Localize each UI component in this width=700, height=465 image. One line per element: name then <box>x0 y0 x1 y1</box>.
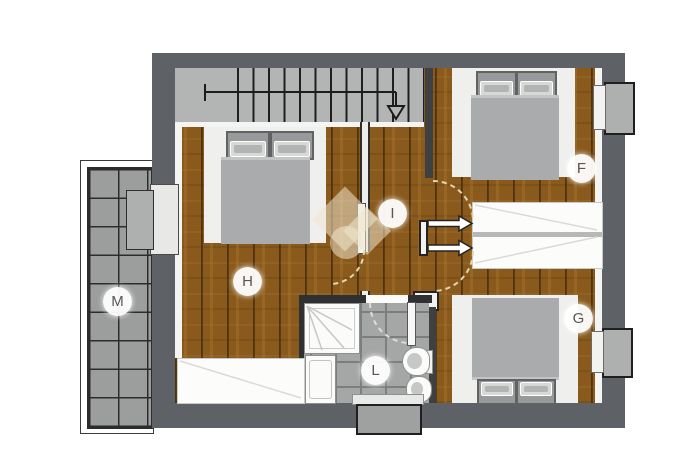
pillow-icon <box>481 382 513 396</box>
bed-H-pillowbox-right <box>270 131 314 160</box>
window-G-sill <box>602 328 633 378</box>
balcony-door-panel <box>126 190 154 250</box>
wardrobe-FG-divider <box>473 232 602 237</box>
pillow-icon <box>274 141 310 157</box>
bed-H <box>204 127 326 243</box>
bed-H-pillowbox-left <box>226 131 270 160</box>
pillow-core <box>278 145 306 153</box>
wardrobe-FG <box>472 202 603 269</box>
window-F-sill <box>604 82 635 135</box>
shower-tray <box>304 303 360 354</box>
pillow-icon <box>480 81 513 96</box>
room-label-L-text: L <box>371 362 379 379</box>
bed-F-blanket <box>471 95 559 180</box>
room-label-G-text: G <box>573 310 585 327</box>
room-label-L: L <box>361 356 390 385</box>
pillow-icon <box>520 81 553 96</box>
room-label-M: M <box>103 287 132 316</box>
pillow-icon <box>230 141 266 157</box>
wall-hall-bedroomF <box>425 68 433 178</box>
staircase-steps <box>237 68 424 122</box>
bed-G <box>452 295 578 403</box>
window-F-frame <box>593 85 606 130</box>
pillow-core <box>484 85 509 92</box>
room-label-I: I <box>378 199 407 228</box>
bed-H-blanket <box>221 157 310 244</box>
room-label-H: H <box>233 267 262 296</box>
wardrobe-H <box>177 358 305 404</box>
pillow-icon <box>520 382 552 396</box>
room-label-F: F <box>567 154 596 183</box>
room-label-G: G <box>564 304 593 333</box>
bed-G-blanket <box>472 298 559 380</box>
window-bathroom-box <box>356 404 422 435</box>
wall-stub-doors-FG <box>419 220 428 256</box>
bathroom-door-opening <box>366 295 408 303</box>
washing-machine-door <box>309 360 332 399</box>
toilet-icon <box>402 347 430 376</box>
toilet-seat <box>407 353 422 369</box>
pillow-core <box>234 145 262 153</box>
bathroom-door-leaf <box>407 302 416 346</box>
shower-tray-inner <box>309 308 355 349</box>
pillow-core <box>524 386 548 392</box>
watermark-circle <box>330 226 363 259</box>
floor-plan: M H I L F G <box>0 0 700 465</box>
room-label-I-text: I <box>390 205 394 222</box>
bed-F <box>452 68 575 177</box>
room-label-F-text: F <box>577 160 586 177</box>
pillow-core <box>524 85 549 92</box>
room-label-M-text: M <box>111 293 124 310</box>
room-label-H-text: H <box>242 273 253 290</box>
washing-machine <box>305 355 336 404</box>
bed-G-pillowbox-left <box>477 379 517 405</box>
pillow-core <box>485 386 509 392</box>
bed-G-pillowbox-right <box>516 379 556 405</box>
window-G-frame <box>591 331 604 373</box>
balcony-door-frame <box>150 184 179 255</box>
